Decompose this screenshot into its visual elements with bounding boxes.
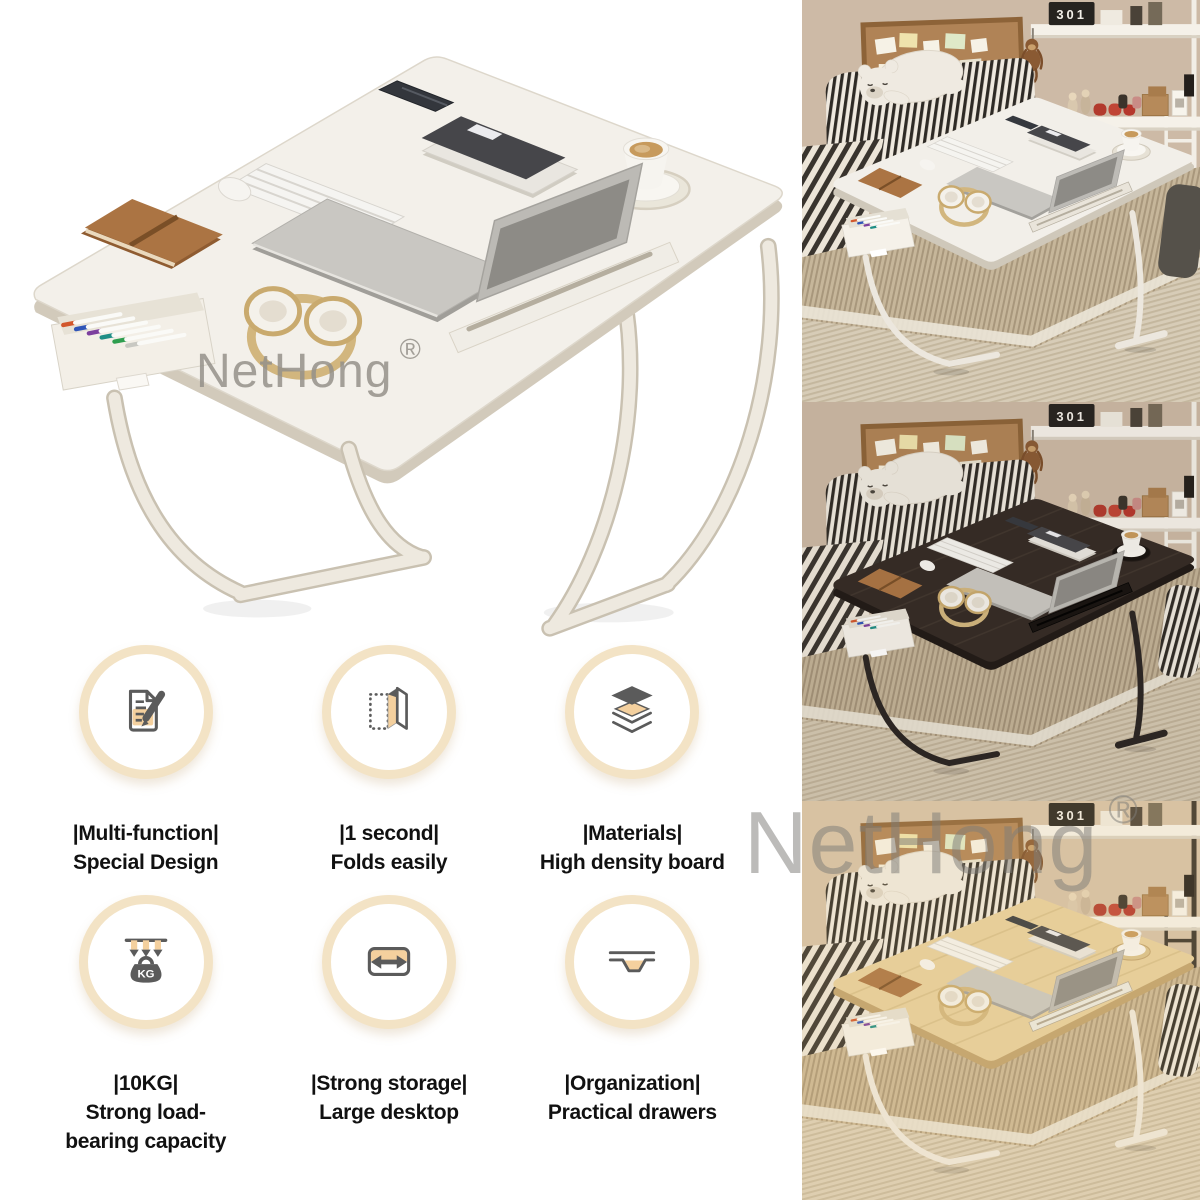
feature-circle — [565, 895, 699, 1029]
feature-desc: Strong load- bearing capacity — [24, 1098, 267, 1156]
feature-desc: High density board — [511, 848, 754, 877]
feature-grid: |Multi-function| Special Design |1 secon… — [24, 645, 754, 1156]
bedroom-scene: 301 — [802, 402, 1200, 801]
main-product-desk — [0, 8, 800, 648]
feature-circle — [322, 645, 456, 779]
feature-desc: Practical drawers — [511, 1098, 754, 1127]
feature-drawers: |Organization| Practical drawers — [511, 895, 754, 1156]
document-edit-icon — [115, 681, 177, 743]
drawer-tray-icon — [601, 931, 663, 993]
feature-circle: KG — [79, 895, 213, 1029]
registered-trademark-icon: ® — [1108, 788, 1138, 832]
feature-fold: |1 second| Folds easily — [267, 645, 510, 877]
registered-trademark-icon: ® — [399, 334, 421, 366]
brand-watermark: NetHong® — [196, 334, 422, 399]
feature-label: |Materials| — [511, 819, 754, 848]
lifestyle-photo-white-desk: 301 — [802, 0, 1200, 402]
main-product-photo — [0, 8, 800, 648]
weight-kg-icon: KG — [115, 931, 177, 993]
feature-label: |Strong storage| — [267, 1069, 510, 1098]
bedroom-scene: 301 — [802, 0, 1200, 402]
feature-materials: |Materials| High density board — [511, 645, 754, 877]
width-arrow-icon — [358, 931, 420, 993]
product-listing-image: NetHong® |Multi-function| Special Design — [0, 0, 1200, 1200]
feature-label: |1 second| — [267, 819, 510, 848]
lifestyle-photo-column: 301 301 301 — [802, 0, 1200, 1200]
fold-panel-icon — [358, 681, 420, 743]
lifestyle-photo-black-desk: 301 — [802, 402, 1200, 801]
feature-desc: Special Design — [24, 848, 267, 877]
feature-multi-function: |Multi-function| Special Design — [24, 645, 267, 877]
feature-label: |Multi-function| — [24, 819, 267, 848]
kg-icon-text: KG — [137, 969, 154, 981]
feature-circle — [565, 645, 699, 779]
feature-circle — [79, 645, 213, 779]
layers-icon — [601, 681, 663, 743]
feature-circle — [322, 895, 456, 1029]
feature-large-desktop: |Strong storage| Large desktop — [267, 895, 510, 1156]
feature-desc: Folds easily — [267, 848, 510, 877]
feature-label: |Organization| — [511, 1069, 754, 1098]
feature-desc: Large desktop — [267, 1098, 510, 1127]
brand-name: NetHong — [744, 793, 1098, 892]
feature-label: |10KG| — [24, 1069, 267, 1098]
brand-watermark-large: NetHong® — [744, 788, 1139, 894]
feature-load-capacity: KG |10KG| Strong load- bearing capacity — [24, 895, 267, 1156]
brand-name: NetHong — [196, 345, 392, 398]
